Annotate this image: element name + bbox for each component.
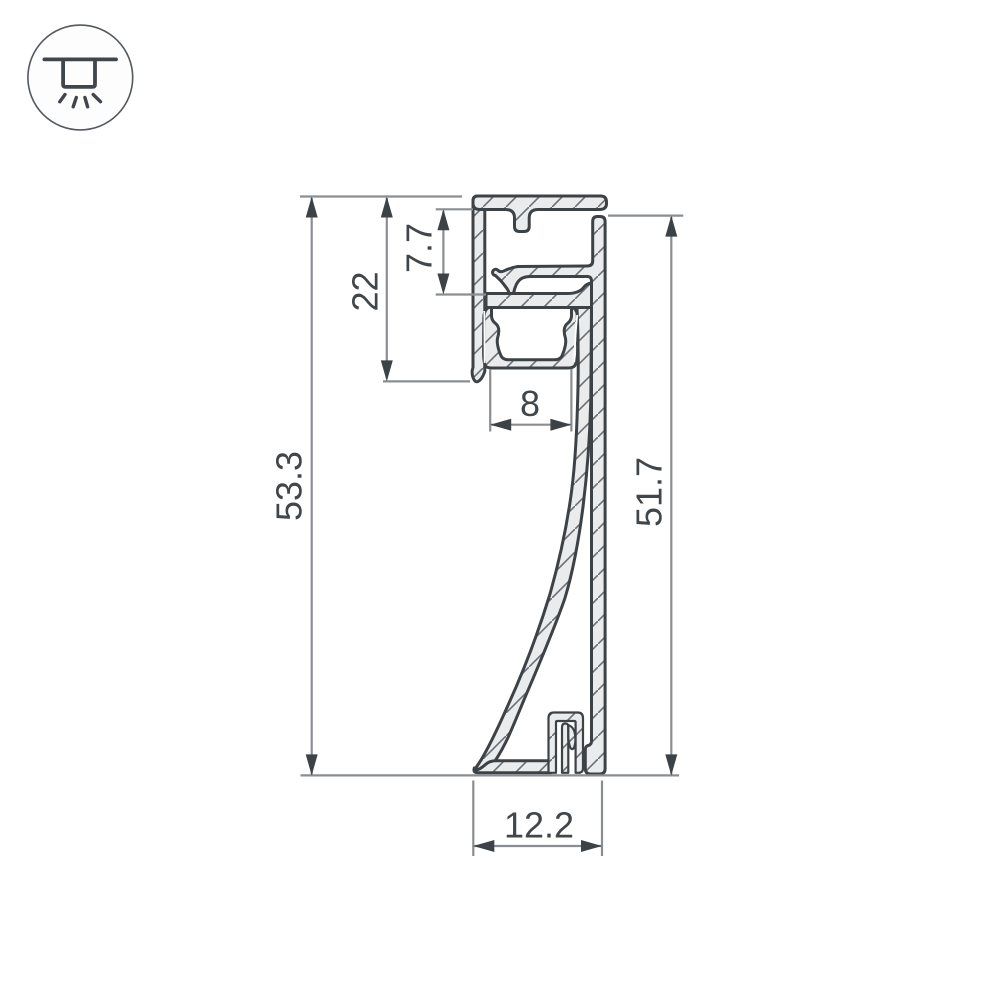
svg-text:8: 8 xyxy=(520,383,540,424)
svg-text:51.7: 51.7 xyxy=(629,457,670,527)
svg-text:53.3: 53.3 xyxy=(269,451,310,521)
svg-text:22: 22 xyxy=(345,271,386,311)
svg-text:12.2: 12.2 xyxy=(504,805,574,846)
svg-text:7.7: 7.7 xyxy=(399,223,440,273)
